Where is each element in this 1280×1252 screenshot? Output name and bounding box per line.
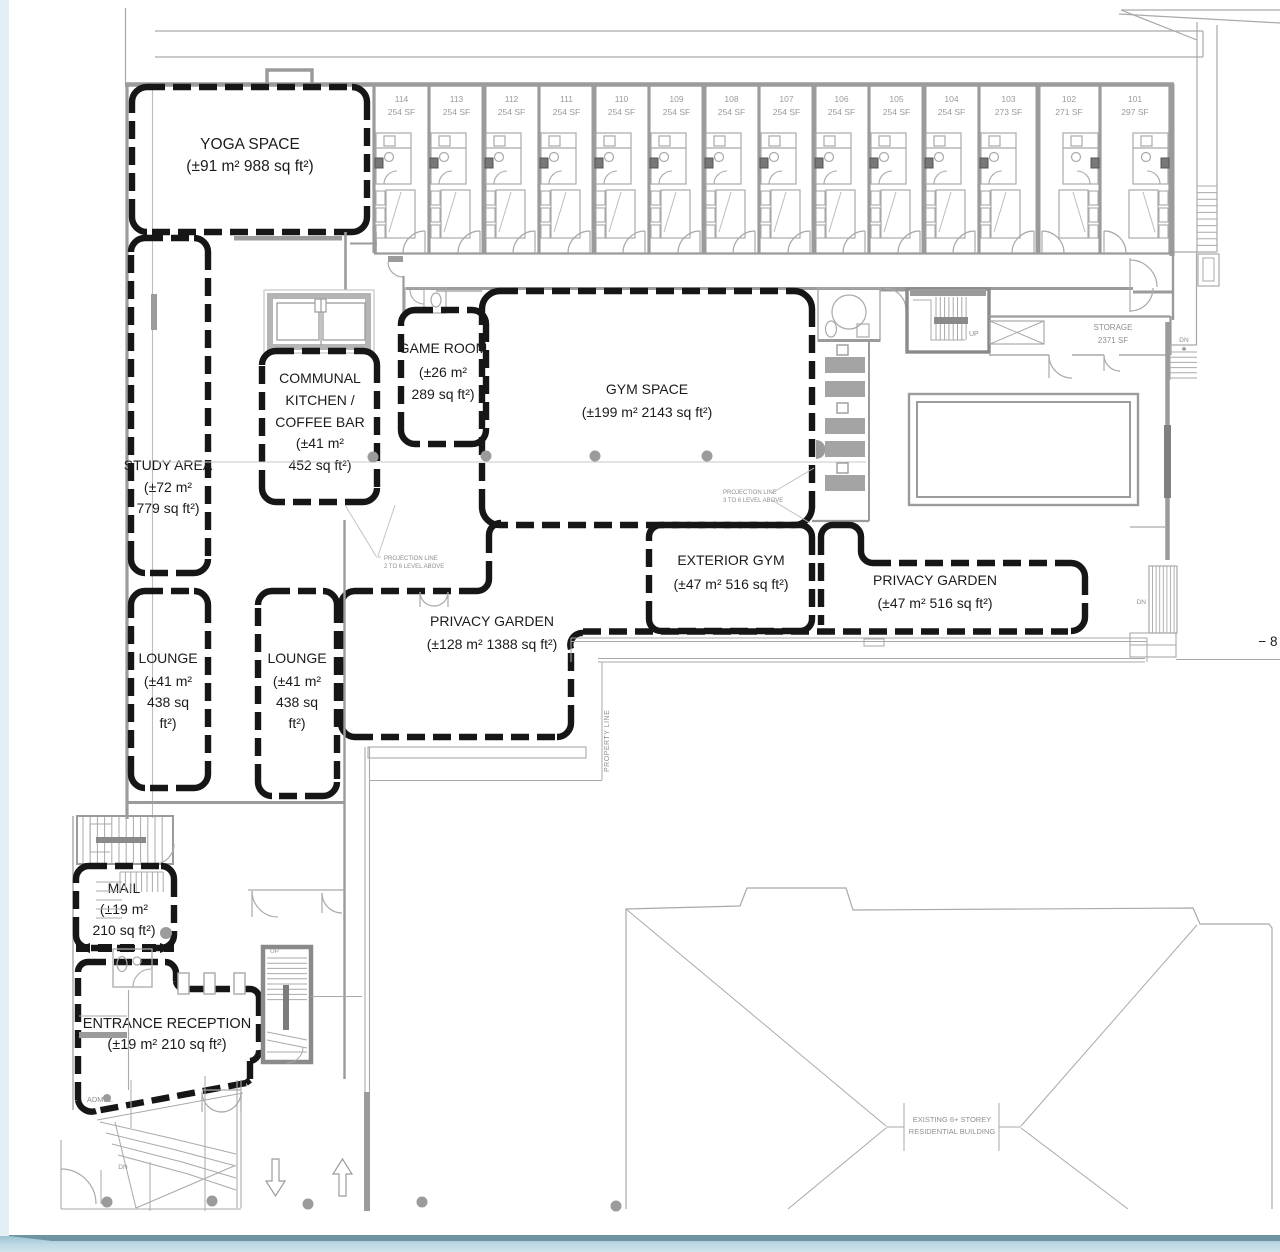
- svg-text:438 sq: 438 sq: [276, 694, 318, 710]
- svg-text:ENTRANCE RECEPTION: ENTRANCE RECEPTION: [83, 1016, 251, 1032]
- svg-text:110: 110: [615, 94, 629, 104]
- svg-text:2 TO 6 LEVEL ABOVE: 2 TO 6 LEVEL ABOVE: [384, 564, 444, 570]
- svg-text:101: 101: [1128, 94, 1142, 104]
- svg-text:(±199 m² 2143 sq ft²): (±199 m² 2143 sq ft²): [582, 404, 713, 420]
- svg-text:− 8: − 8: [1258, 634, 1277, 649]
- svg-text:EXTERIOR GYM: EXTERIOR GYM: [677, 552, 784, 568]
- svg-text:GYM SPACE: GYM SPACE: [606, 381, 688, 397]
- svg-text:(±91 m² 988 sq ft²): (±91 m² 988 sq ft²): [186, 158, 313, 175]
- svg-text:254 SF: 254 SF: [608, 107, 635, 117]
- svg-text:114: 114: [395, 94, 409, 104]
- svg-text:COMMUNAL: COMMUNAL: [279, 370, 361, 386]
- svg-text:(±47 m² 516 sq ft²): (±47 m² 516 sq ft²): [877, 595, 992, 611]
- svg-text:254 SF: 254 SF: [663, 107, 690, 117]
- svg-text:LOUNGE: LOUNGE: [138, 650, 197, 666]
- svg-text:PROJECTION LINE: PROJECTION LINE: [384, 556, 438, 562]
- svg-text:109: 109: [669, 94, 683, 104]
- svg-text:(±41 m²: (±41 m²: [273, 673, 321, 689]
- svg-text:PRIVACY GARDEN: PRIVACY GARDEN: [430, 613, 554, 629]
- svg-text:PRIVACY GARDEN: PRIVACY GARDEN: [873, 572, 997, 588]
- svg-text:112: 112: [505, 94, 519, 104]
- svg-text:DN: DN: [118, 1164, 128, 1171]
- svg-text:(±26 m²: (±26 m²: [419, 364, 467, 380]
- svg-text:STORAGE: STORAGE: [1094, 323, 1133, 332]
- svg-text:(±47 m² 516 sq ft²): (±47 m² 516 sq ft²): [673, 576, 788, 592]
- svg-text:210 sq ft²): 210 sq ft²): [92, 922, 155, 938]
- svg-text:RESIDENTIAL BUILDING: RESIDENTIAL BUILDING: [909, 1127, 996, 1136]
- svg-text:UP: UP: [969, 331, 979, 338]
- svg-text:ft²): ft²): [288, 715, 305, 731]
- svg-text:DN: DN: [1179, 337, 1189, 344]
- svg-text:ft²): ft²): [159, 715, 176, 731]
- svg-text:254 SF: 254 SF: [443, 107, 470, 117]
- svg-text:113: 113: [450, 94, 464, 104]
- svg-text:104: 104: [944, 94, 958, 104]
- svg-text:103: 103: [1001, 94, 1015, 104]
- svg-text:2371 SF: 2371 SF: [1098, 336, 1128, 345]
- svg-text:(±19 m² 210 sq ft²): (±19 m² 210 sq ft²): [107, 1037, 226, 1053]
- svg-text:254 SF: 254 SF: [828, 107, 855, 117]
- svg-text:254 SF: 254 SF: [718, 107, 745, 117]
- svg-text:289 sq ft²): 289 sq ft²): [411, 386, 474, 402]
- svg-text:779 sq ft²): 779 sq ft²): [136, 500, 199, 516]
- svg-text:COFFEE BAR: COFFEE BAR: [275, 414, 364, 430]
- svg-text:254 SF: 254 SF: [773, 107, 800, 117]
- svg-text:DN: DN: [1137, 599, 1147, 606]
- svg-text:(±41 m²: (±41 m²: [296, 435, 344, 451]
- svg-text:273 SF: 273 SF: [995, 107, 1022, 117]
- svg-text:438 sq: 438 sq: [147, 694, 189, 710]
- svg-text:254 SF: 254 SF: [883, 107, 910, 117]
- svg-text:254 SF: 254 SF: [938, 107, 965, 117]
- svg-text:EXISTING 6+ STOREY: EXISTING 6+ STOREY: [913, 1115, 991, 1124]
- svg-text:105: 105: [889, 94, 903, 104]
- svg-text:YOGA SPACE: YOGA SPACE: [200, 136, 300, 153]
- svg-text:PROPERTY LINE: PROPERTY LINE: [604, 710, 611, 772]
- svg-text:254 SF: 254 SF: [498, 107, 525, 117]
- svg-text:LOUNGE: LOUNGE: [267, 650, 326, 666]
- svg-text:KITCHEN /: KITCHEN /: [285, 392, 354, 408]
- svg-text:PROJECTION LINE: PROJECTION LINE: [723, 490, 777, 496]
- svg-text:107: 107: [779, 94, 793, 104]
- svg-text:UP: UP: [270, 948, 279, 955]
- svg-text:254 SF: 254 SF: [553, 107, 580, 117]
- svg-text:GAME ROOM: GAME ROOM: [399, 340, 488, 356]
- svg-text:STUDY AREA: STUDY AREA: [124, 457, 213, 473]
- svg-text:271 SF: 271 SF: [1055, 107, 1082, 117]
- svg-text:297 SF: 297 SF: [1121, 107, 1148, 117]
- svg-text:106: 106: [834, 94, 848, 104]
- svg-text:111: 111: [560, 94, 573, 104]
- svg-text:(±41 m²: (±41 m²: [144, 673, 192, 689]
- svg-text:452 sq ft²): 452 sq ft²): [288, 457, 351, 473]
- svg-text:(±128 m² 1388 sq ft²): (±128 m² 1388 sq ft²): [427, 636, 558, 652]
- svg-text:102: 102: [1062, 94, 1076, 104]
- svg-text:(±72 m²: (±72 m²: [144, 479, 192, 495]
- svg-text:108: 108: [724, 94, 738, 104]
- svg-text:254 SF: 254 SF: [388, 107, 415, 117]
